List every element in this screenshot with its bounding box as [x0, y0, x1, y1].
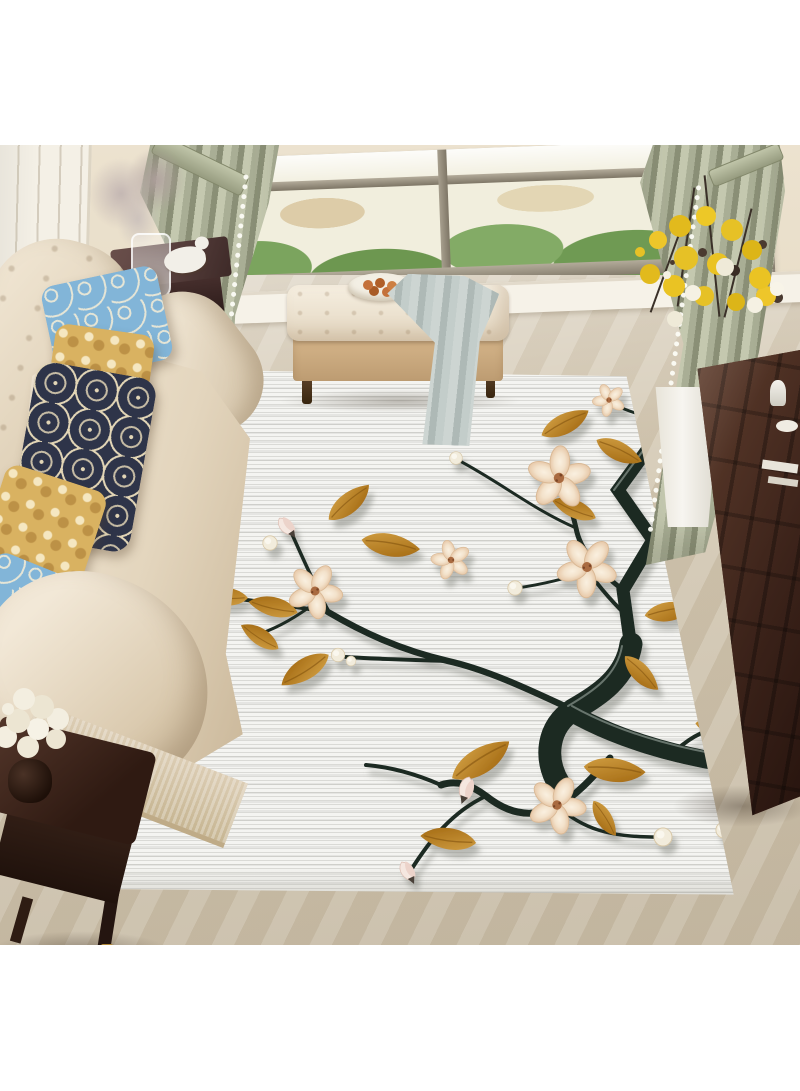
shelf-items — [762, 460, 799, 474]
living-room-photo — [0, 145, 800, 945]
twig — [704, 175, 721, 316]
product-photo-canvas — [0, 0, 800, 1091]
white-flowers — [663, 271, 671, 279]
fruits — [363, 280, 373, 290]
shelf-items — [768, 476, 799, 487]
goblet — [770, 380, 786, 406]
white-flower-bouquet — [2, 703, 14, 715]
dish — [776, 420, 798, 432]
flower-branch-cluster — [670, 260, 675, 265]
twig — [723, 208, 752, 317]
yellow-flowers — [635, 247, 645, 257]
end-table-foot — [101, 944, 113, 945]
twig — [677, 187, 696, 306]
bench-leg — [302, 378, 312, 404]
bouquet-vase — [8, 759, 52, 803]
